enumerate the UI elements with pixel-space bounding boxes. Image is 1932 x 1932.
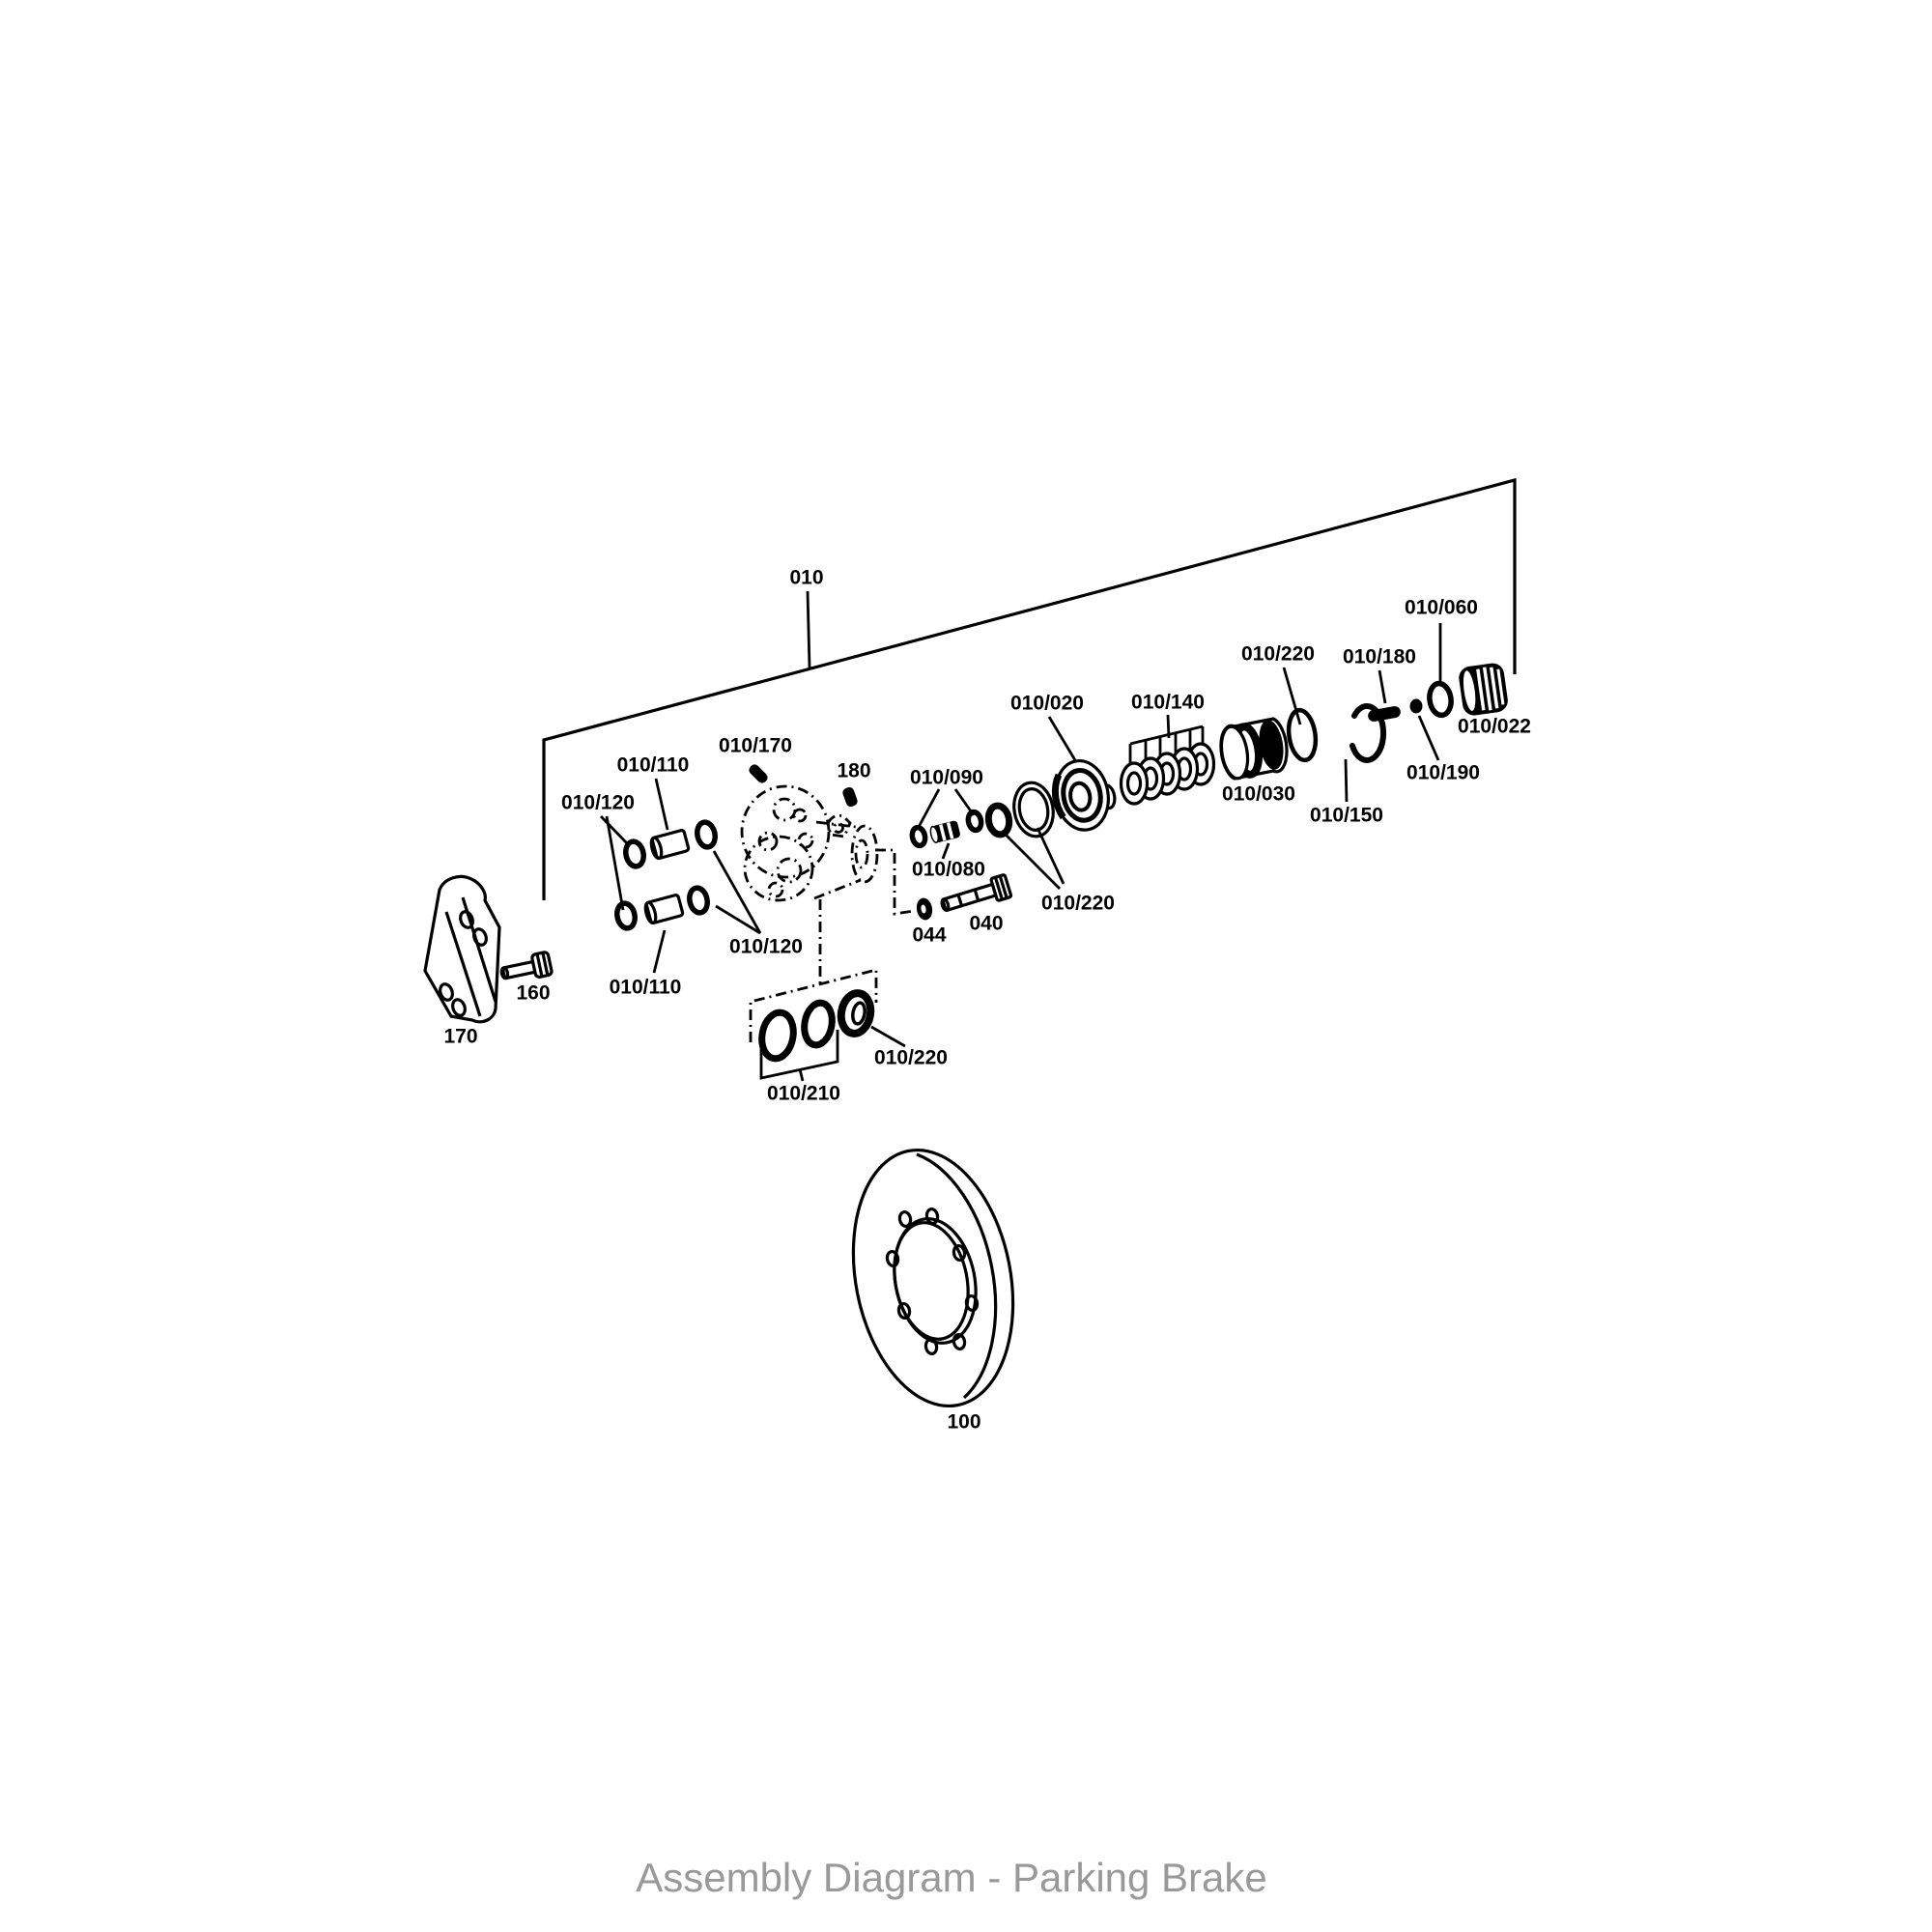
label-part-010-190: 010/190: [1406, 762, 1480, 784]
label-part-010-110-bottom: 010/110: [610, 977, 682, 999]
label-part-010-080: 010/080: [912, 859, 985, 881]
label-part-010-170: 010/170: [719, 735, 792, 757]
label-part-170: 170: [443, 1026, 477, 1048]
bushing-030: [1218, 718, 1287, 780]
guide-pin-bottom: [614, 886, 709, 929]
bushing-080: [929, 820, 961, 844]
label-part-010-110-top: 010/110: [617, 754, 690, 777]
label-part-160: 160: [516, 982, 550, 1005]
caliper-reference-lines: [820, 850, 914, 984]
diagram-canvas: 010010/060010/220010/180010/140010/02001…: [0, 0, 1932, 1932]
label-part-010-030: 010/030: [1222, 783, 1295, 806]
bolt-040: [939, 874, 1011, 917]
guide-pin-top: [623, 820, 717, 867]
label-part-010-120-top: 010/120: [561, 792, 635, 814]
group-bracket-010: [544, 480, 1515, 900]
brake-disc: [833, 1136, 1034, 1420]
label-part-010-180: 010/180: [1343, 646, 1416, 668]
label-part-010-140: 010/140: [1131, 692, 1205, 714]
diagram-title: Assembly Diagram - Parking Brake: [636, 1855, 1267, 1900]
label-part-010-060: 010/060: [1405, 597, 1478, 619]
assembly-diagram: 010010/060010/220010/180010/140010/02001…: [0, 0, 1932, 1932]
piston-020: [1050, 755, 1120, 834]
plug-180: [841, 786, 859, 809]
label-part-040: 040: [969, 913, 1003, 935]
label-part-010-220-mid: 010/220: [1041, 893, 1115, 915]
disc-stack-140: [1122, 744, 1214, 804]
ball-190: [1410, 699, 1423, 714]
o-ring-220-right: [1286, 708, 1319, 761]
label-part-010-220-top: 010/220: [1241, 643, 1315, 666]
label-part-010-020: 010/020: [1010, 693, 1084, 715]
bolt-160: [499, 952, 553, 984]
label-part-180: 180: [837, 760, 870, 782]
label-part-010-022: 010/022: [1458, 716, 1531, 738]
label-part-010-150: 010/150: [1310, 805, 1383, 827]
label-part-010-120-bottom: 010/120: [729, 936, 803, 958]
label-part-010-210: 010/210: [767, 1083, 840, 1105]
label-part-044: 044: [912, 924, 946, 947]
label-group-010: 010: [789, 567, 823, 589]
locknut-022: [1458, 662, 1510, 717]
o-ring-060: [1428, 682, 1453, 717]
seal-rings-220-mid: [986, 780, 1058, 839]
washer-044: [915, 896, 934, 921]
label-part-100: 100: [947, 1411, 980, 1434]
seal-kit-210: [751, 970, 876, 1061]
label-part-010-090: 010/090: [910, 767, 983, 789]
anchor-plate: [425, 876, 499, 1021]
plug-010-170: [747, 762, 769, 784]
label-part-010-220-bottom: 010/220: [874, 1047, 948, 1069]
part-labels: 010010/060010/220010/180010/140010/02001…: [443, 567, 1530, 1434]
seal-220-bottom: [838, 991, 874, 1037]
